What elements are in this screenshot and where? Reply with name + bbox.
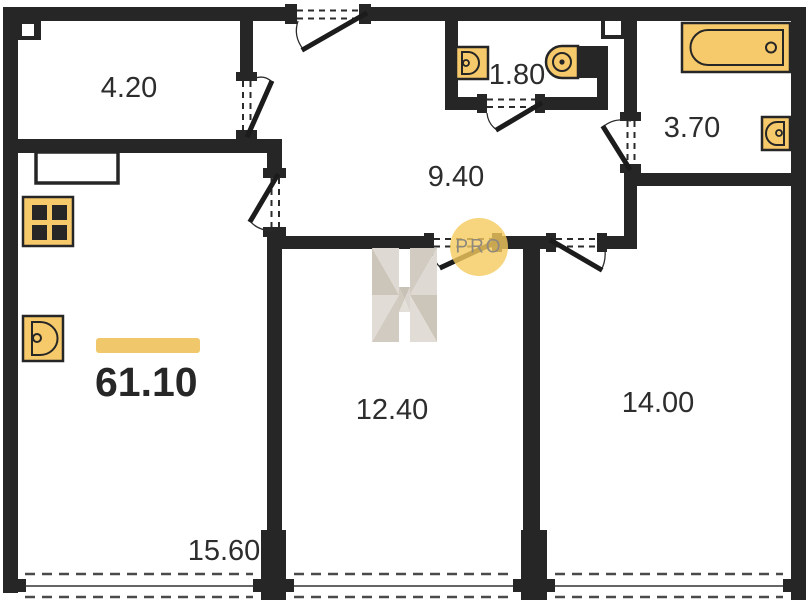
watermark-pro-text: PRO [455,237,502,258]
wall-kitchen-lower [267,236,282,600]
room-area-label-420: 4.20 [101,72,157,104]
room1400-door-leaf [552,241,600,269]
kitchen-sink-icon [23,316,63,361]
watermark-pro-badge: PRO [450,218,508,276]
wall-outer-top-left [3,7,297,21]
window-lines [25,574,783,597]
total-area-block: 61.10 [95,338,200,405]
floor-plan-canvas: PRO [0,0,809,600]
wall-1240-1400 [523,249,540,600]
wall-420-right-upper [240,21,253,73]
wall-outer-right [791,7,806,600]
wall-hall-south-a [282,236,428,249]
room-area-label-370: 3.70 [664,112,720,144]
bath-door-leaf [604,128,629,168]
watermark-letter-h [372,248,437,342]
room-area-label-180: 1.80 [489,59,545,91]
room-area-label-1560: 15.60 [188,535,261,567]
bath-sink-icon [762,117,790,150]
wall-wc-bottom-a [445,97,480,110]
room-area-label-1240: 12.40 [356,394,429,426]
kitchen-door-leaf [251,176,277,220]
wall-hall-east-stub [624,186,637,249]
room-area-label-1400: 14.00 [622,387,695,419]
stove-icon [23,197,73,246]
room-area-label-940: 9.40 [428,161,484,193]
total-area-accent-bar [96,338,200,353]
counter-icon [36,152,118,183]
wall-duct [597,46,608,110]
wall-bath-bottom [624,173,791,186]
toilet-icon [546,46,597,78]
wall-bath-left [624,21,637,115]
wall-outer-left [3,7,18,593]
total-area-label: 61.10 [95,359,198,405]
wc-sink-icon [456,47,488,79]
wall-outer-top-right [359,7,806,21]
wc-door-leaf [498,104,540,129]
bathtub-icon [682,23,790,72]
wall-kitchen-upper [267,153,282,169]
